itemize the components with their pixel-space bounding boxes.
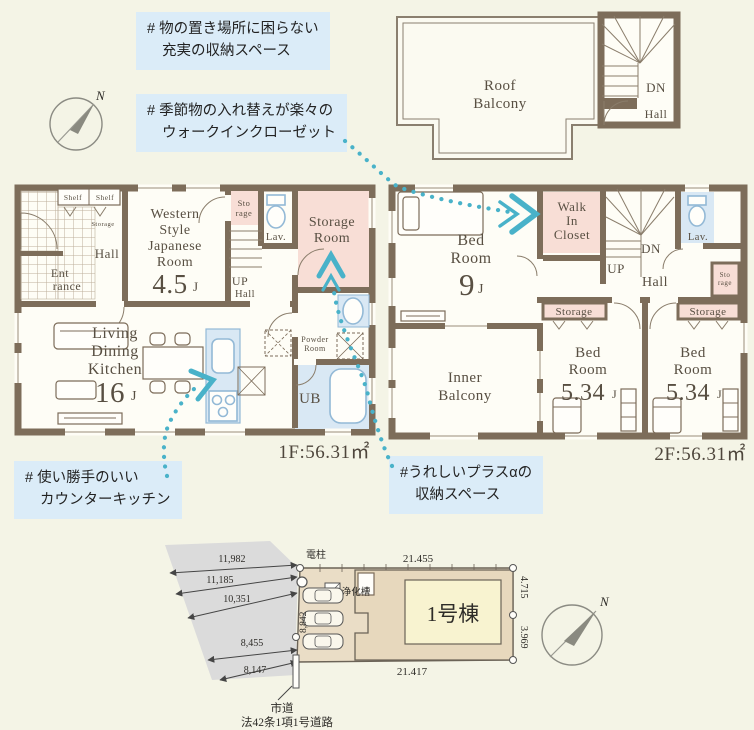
- bath-label: UB: [299, 391, 321, 407]
- callout-line: # 季節物の入れ替えが楽々の: [147, 100, 336, 122]
- stairs-dn-label: DN: [646, 80, 666, 95]
- car-icon: [303, 588, 343, 603]
- utility-pole-icon: [297, 577, 307, 587]
- road-dim-label: 11,185: [206, 575, 233, 586]
- compass-north-label: N: [599, 594, 610, 609]
- boundary-marker: [297, 565, 304, 572]
- japanese-room-size: 4.5: [152, 269, 187, 299]
- callout-line: #うれしいプラスαの: [400, 462, 532, 484]
- hall-label: Hall: [95, 246, 119, 261]
- wic-label: In: [566, 213, 578, 228]
- callout-line: # 使い勝手のいい: [25, 467, 171, 489]
- shoe-closet-tile: [21, 191, 58, 251]
- lavatory-label: Lav.: [688, 232, 708, 243]
- plot-dim-bottom: 21.417: [397, 666, 428, 678]
- floor-area-1f: 1F:56.31㎡: [230, 437, 370, 464]
- wic-label: Closet: [554, 227, 590, 242]
- entrance-label: rance: [53, 279, 81, 293]
- road-dim-label: 10,351: [223, 594, 251, 605]
- shelf-label: Shelf: [64, 193, 82, 202]
- compass-needle: [70, 104, 94, 134]
- ldk-label: Dining: [91, 343, 138, 360]
- entrance-label: Ent: [51, 266, 69, 280]
- kitchen-counter: [206, 329, 240, 423]
- storage-label: rage: [236, 208, 253, 218]
- building-name-label: 1号棟: [427, 602, 480, 626]
- compass-icon: N: [542, 594, 610, 665]
- powder-sink-icon: [338, 295, 369, 327]
- hall-label: Hall: [645, 107, 668, 121]
- desk-icon: [723, 389, 738, 431]
- compass-north-label: N: [95, 88, 106, 103]
- floor-area-2f: 2F:56.31㎡: [606, 439, 746, 466]
- site-plan: 1号棟 浄化槽 11,982 11,185 10,351: [140, 538, 754, 730]
- plot-dim-right-upper: 4.715: [518, 576, 529, 599]
- callout-line: 充実の収納スペース: [147, 40, 319, 62]
- roof-balcony-label: Balcony: [473, 96, 527, 112]
- bed-icon: [398, 192, 483, 235]
- callout-line: カウンターキッチン: [25, 489, 171, 511]
- hall-storage-label: Storage: [91, 221, 114, 228]
- japanese-room-unit: J: [193, 279, 199, 294]
- low-table-icon: [56, 381, 96, 399]
- callout-line: # 物の置き場所に困らない: [147, 18, 319, 40]
- ldk-size: 16: [95, 377, 125, 409]
- ldk-label: Living: [92, 325, 138, 342]
- storage-room-label: Storage: [309, 215, 355, 230]
- bedroom9-label: Room: [450, 250, 491, 267]
- septic-tank-label: 浄化槽: [342, 586, 371, 598]
- road-name-label: 市道: [271, 701, 294, 715]
- boundary-marker: [510, 612, 517, 619]
- boundary-marker: [510, 565, 517, 572]
- boundary-marker: [510, 657, 517, 664]
- storage-left-label: Storage: [555, 306, 592, 318]
- car-icon: [303, 611, 343, 626]
- ldk-unit: J: [131, 389, 137, 404]
- boundary-post: [293, 655, 299, 688]
- callout-counter-kitchen: # 使い勝手のいい カウンターキッチン: [14, 461, 182, 519]
- roof-plan: Roof Balcony DN Hall: [388, 8, 708, 180]
- powder-room-label: Powder: [301, 335, 328, 344]
- storage-small-label: Sto: [720, 271, 731, 279]
- bedroom-left-label: Bed: [575, 345, 601, 361]
- plot-dim-right-lower: 3.969: [518, 626, 529, 649]
- stairs-hall-label: Hall: [235, 289, 255, 300]
- bedroom-left-size: 5.34: [561, 380, 605, 406]
- floor-plan-2f: Bed Room 9 J Walk In Closet DN UP Hall L…: [385, 183, 754, 445]
- wic-label: Walk: [557, 199, 586, 214]
- boundary-marker: [293, 634, 300, 641]
- utility-pole-label: 電柱: [306, 548, 326, 561]
- ldk-label: Kitchen: [88, 361, 142, 378]
- toilet-icon: [267, 195, 285, 228]
- tv-board-icon: [58, 413, 122, 424]
- bedroom-right-unit: J: [717, 387, 722, 401]
- japanese-room-label: Western: [150, 207, 199, 222]
- road-dim-label: 11,982: [218, 554, 245, 565]
- japanese-room-label: Japanese: [148, 239, 202, 254]
- bedroom-right-size: 5.34: [666, 380, 710, 406]
- callout-plus-alpha-storage: #うれしいプラスαの 収納スペース: [389, 456, 543, 514]
- road-leader-line: [278, 686, 292, 700]
- callout-line: ウォークインクローゼット: [147, 122, 336, 144]
- car-icon: [303, 634, 343, 649]
- stairs-up-label: UP: [232, 274, 248, 288]
- bedroom-right-label: Room: [674, 362, 713, 378]
- desk-icon: [621, 389, 636, 431]
- callout-storage-space: # 物の置き場所に困らない 充実の収納スペース: [136, 12, 330, 70]
- callout-line: 収納スペース: [400, 484, 532, 506]
- storage-right-label: Storage: [689, 306, 726, 318]
- powder-room-label: Room: [304, 344, 326, 353]
- inner-balcony-label: Inner: [448, 370, 482, 386]
- storage-label: Sto: [238, 198, 251, 208]
- hall-label: Hall: [642, 275, 668, 290]
- plot-dim-top: 21.455: [403, 553, 434, 565]
- bedroom-left-unit: J: [612, 387, 617, 401]
- storage-room-label: Room: [314, 231, 350, 246]
- japanese-room-label: Style: [159, 223, 190, 238]
- bedroom9-unit: J: [478, 282, 484, 297]
- toilet-icon: [688, 196, 706, 226]
- callout-walk-in-closet: # 季節物の入れ替えが楽々の ウォークインクローゼット: [136, 94, 347, 152]
- japanese-room-label: Room: [157, 255, 193, 270]
- compass-icon: N: [38, 82, 122, 162]
- floor-plan-1f: Shelf Shelf: [10, 183, 382, 441]
- road-dim-label: 8,455: [241, 638, 264, 649]
- bedroom9-label: Bed: [457, 232, 484, 249]
- tv-board-icon: [401, 311, 445, 321]
- floor-plan-flyer: N # 物の置き場所に困らない 充実の収納スペース # 季節物の入れ替えが楽々の…: [0, 0, 754, 730]
- bedroom-left-label: Room: [569, 362, 608, 378]
- storage-small-label: rage: [718, 279, 732, 287]
- compass-needle: [564, 611, 596, 646]
- stairs-dn-label: DN: [641, 241, 661, 256]
- bedroom-right-label: Bed: [680, 345, 706, 361]
- parking-dim: 8,842: [299, 611, 309, 633]
- roof-balcony-label: Roof: [484, 78, 516, 94]
- inner-balcony-label: Balcony: [438, 388, 492, 404]
- stairs-up-label: UP: [607, 261, 625, 276]
- lavatory-label: Lav.: [266, 232, 286, 243]
- bedroom9-size: 9: [459, 267, 475, 302]
- shelf-label: Shelf: [96, 193, 114, 202]
- bathtub-icon: [330, 369, 366, 423]
- road-name-label: 法42条1項1号道路: [241, 715, 333, 729]
- road-dim-label: 8,147: [244, 665, 267, 676]
